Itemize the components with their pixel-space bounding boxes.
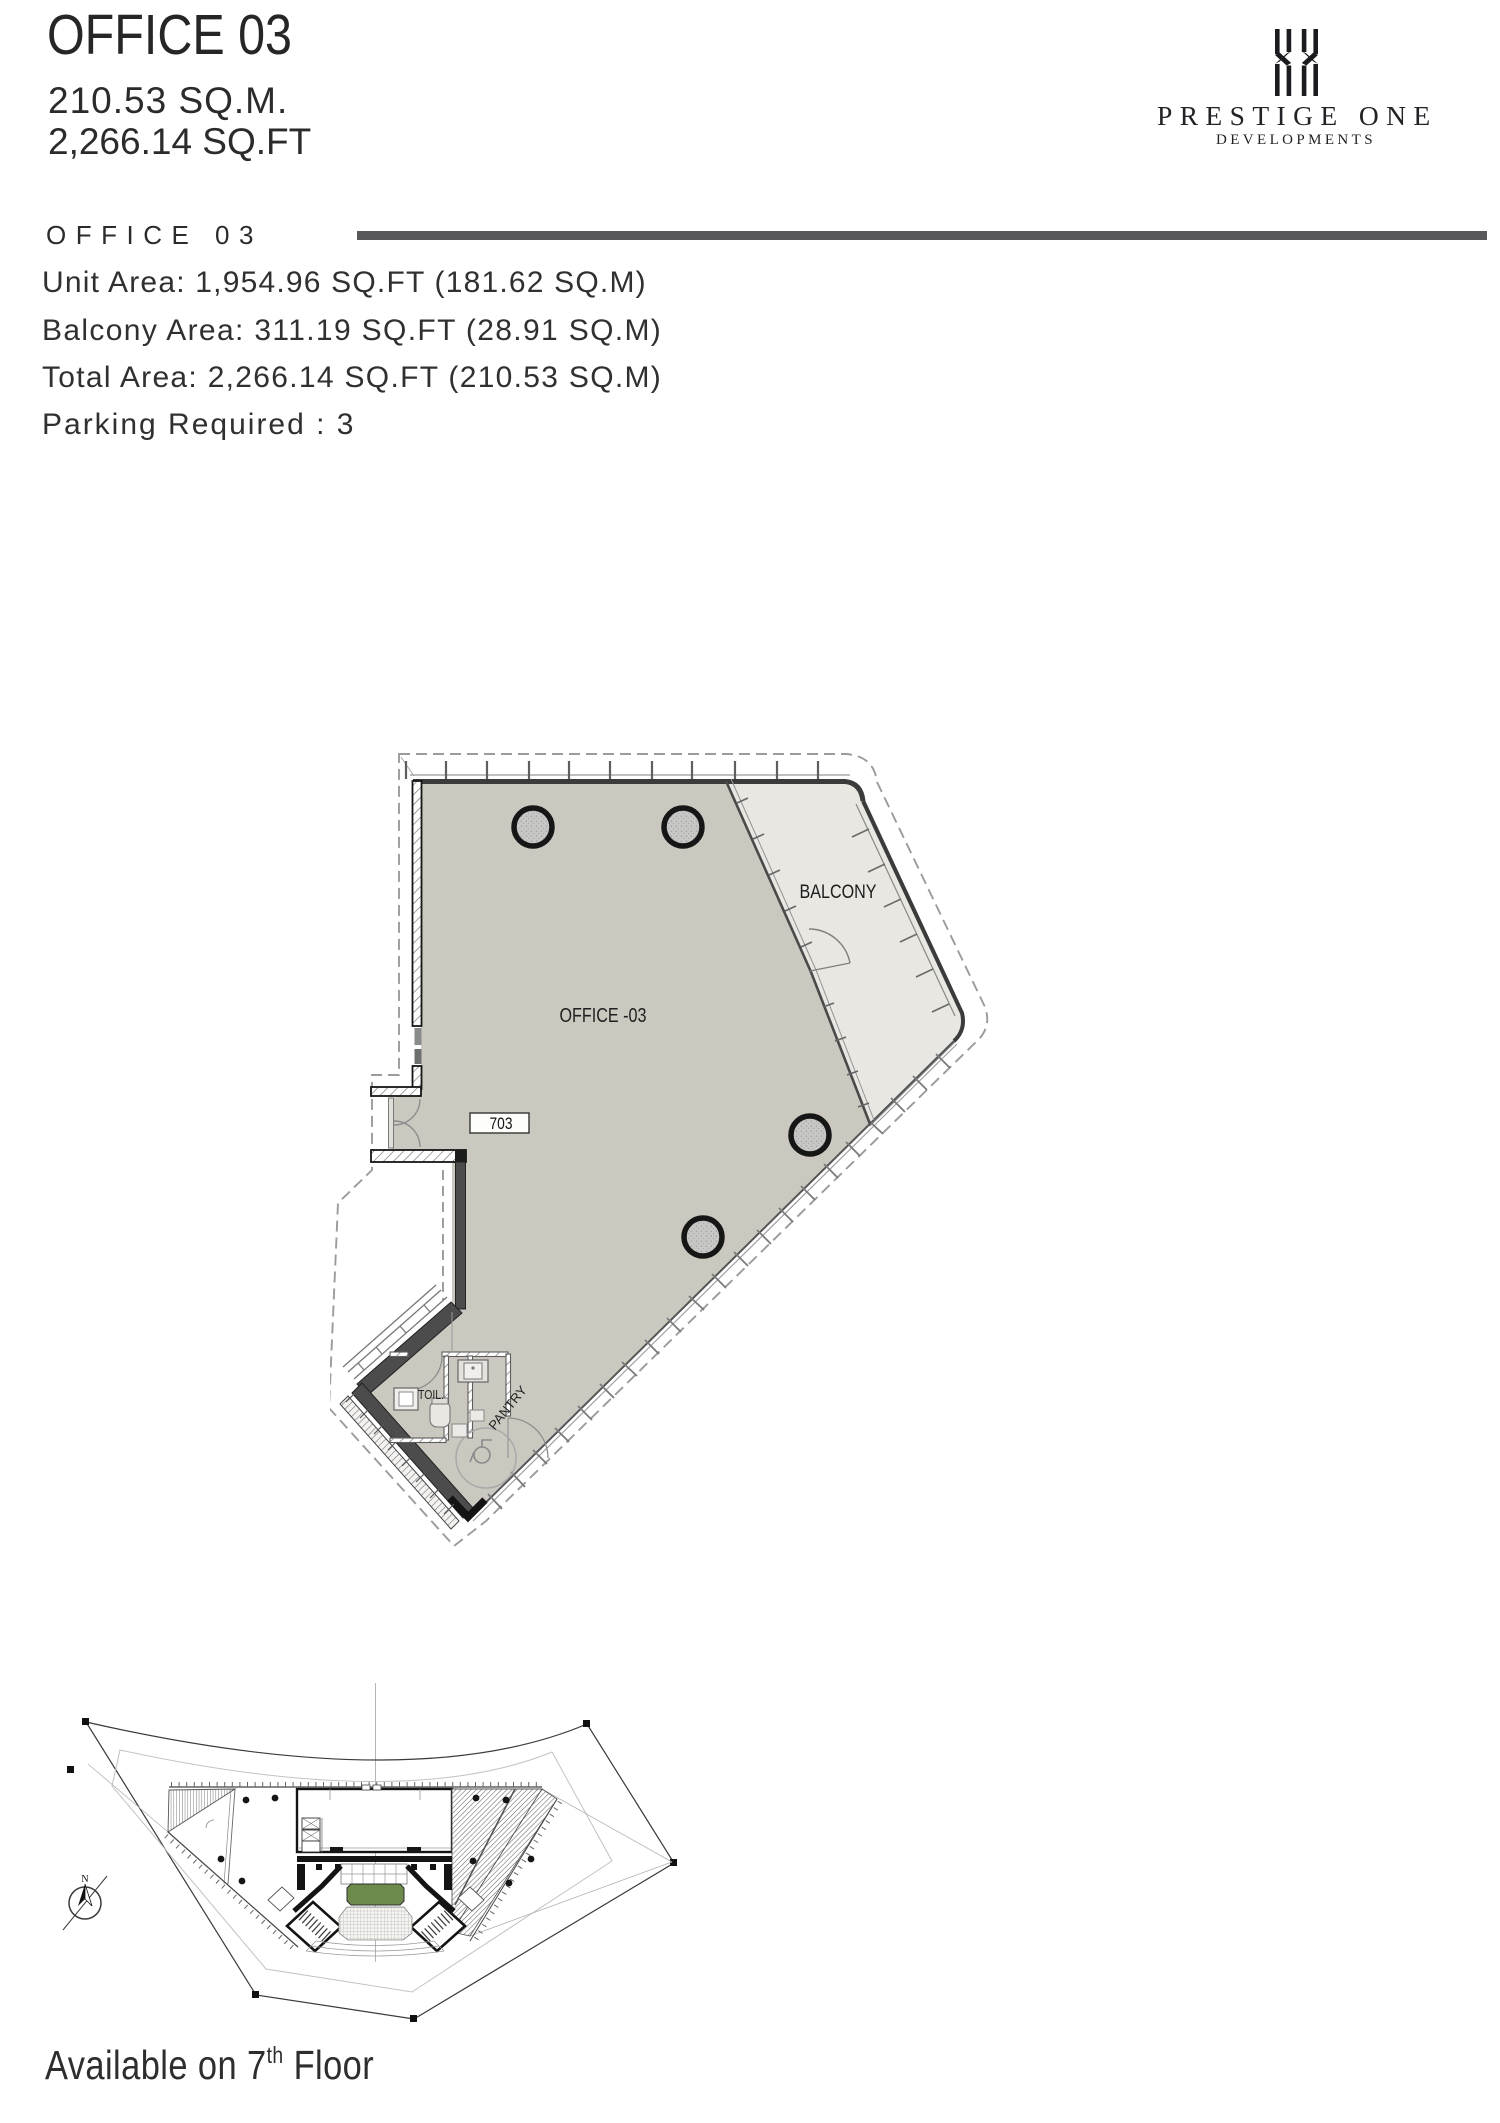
svg-text:BALCONY: BALCONY — [800, 881, 877, 903]
svg-text:N: N — [81, 1874, 88, 1885]
svg-text:TOIL.: TOIL. — [418, 1388, 444, 1402]
svg-text:703: 703 — [490, 1114, 513, 1133]
svg-text:OFFICE -03: OFFICE -03 — [560, 1004, 647, 1027]
